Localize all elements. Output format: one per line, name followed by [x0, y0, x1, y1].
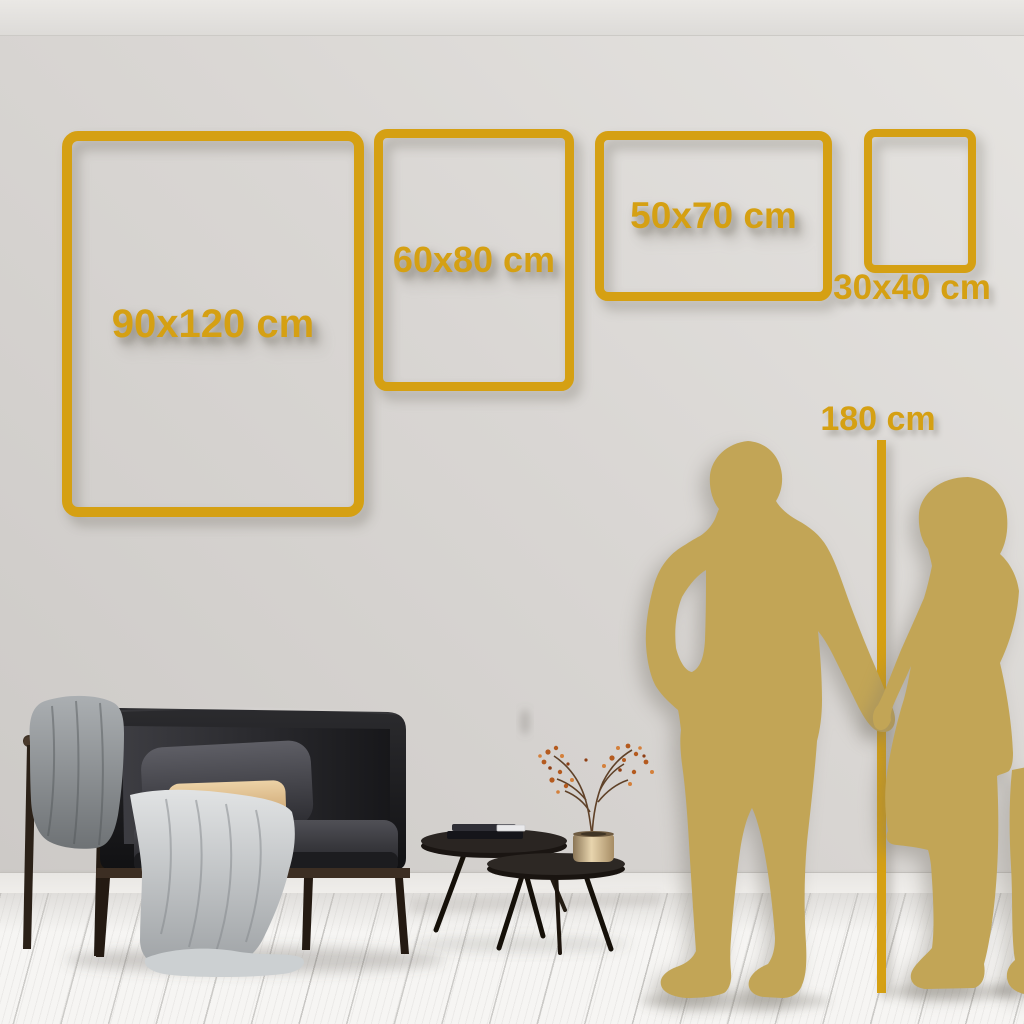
woman-silhouette — [873, 477, 1024, 995]
man-silhouette — [646, 441, 895, 998]
size-guide-scene: 90x120 cm 60x80 cm 50x70 cm 30x40 cm 180… — [0, 0, 1024, 1024]
couple-silhouettes — [0, 0, 1024, 1024]
